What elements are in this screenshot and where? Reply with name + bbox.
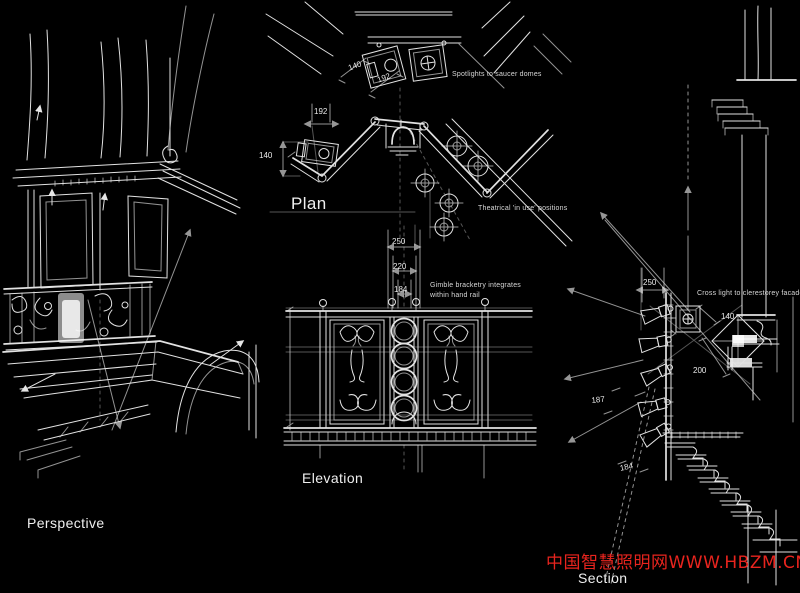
- note-theatrical: Theatrical 'in use' positions: [478, 205, 567, 212]
- plan-bell-fixture: [386, 120, 420, 155]
- note-gimble-line2: within hand rail: [430, 291, 521, 301]
- note-gimble: Gimble bracketry integrates within hand …: [430, 281, 521, 300]
- perspective-label: Perspective: [27, 515, 105, 531]
- plan-label: Plan: [291, 194, 327, 214]
- dim-plan-192-rail: 192: [314, 107, 327, 116]
- dim-sect-187: 187: [591, 395, 605, 405]
- rail-scroll: [12, 296, 27, 312]
- panel-scrollwork: [340, 326, 376, 411]
- lighting-sketch-sheet: Perspective Plan Elevation Section Spotl…: [0, 0, 800, 593]
- dim-sect-250: 250: [643, 278, 656, 287]
- dim-elev-250: 250: [392, 237, 405, 246]
- note-crosslight: Cross light to clerestorey facade: [697, 290, 800, 297]
- sketch-canvas: [0, 0, 800, 593]
- elevation-linework: [284, 226, 536, 478]
- dim-sect-200: 200: [693, 366, 706, 375]
- note-spotlights: Spotlights to saucer domes: [452, 71, 542, 78]
- dim-elev-184: 184: [394, 285, 407, 294]
- dim-sect-140: 140: [721, 312, 734, 321]
- watermark: 中国智慧照明网WWW.HBZM.CN: [546, 548, 800, 573]
- dim-elev-220: 220: [393, 262, 406, 271]
- ring-column: [392, 319, 417, 425]
- plan-spotlight-fixture-2: [409, 45, 447, 81]
- elevation-label: Elevation: [302, 470, 363, 486]
- perspective-linework: [3, 6, 259, 478]
- dim-plan-140-rail: 140: [259, 151, 272, 160]
- note-gimble-line1: Gimble bracketry integrates: [430, 281, 521, 291]
